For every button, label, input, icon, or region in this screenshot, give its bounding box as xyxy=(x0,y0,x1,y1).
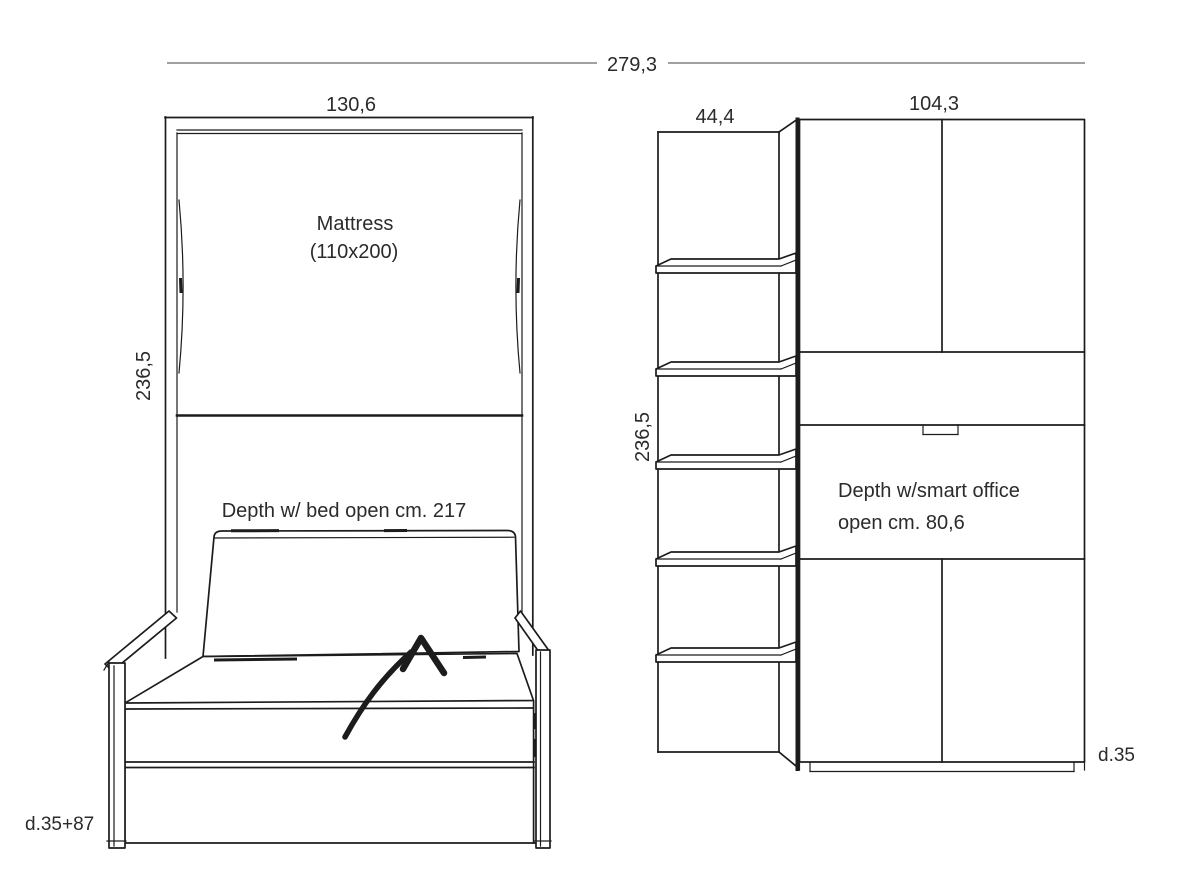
office-closed-depth-label: d.35 xyxy=(1098,745,1135,766)
mattress-label-line2: (110x200) xyxy=(310,241,399,263)
shelf-2 xyxy=(656,356,796,376)
sofa xyxy=(104,531,551,849)
shelf-5 xyxy=(656,642,796,662)
shelf-4 xyxy=(656,546,796,566)
shelf-width-label: 44,4 xyxy=(696,106,735,128)
bed-closed-depth-label: d.35+87 xyxy=(25,814,94,835)
shelf-3 xyxy=(656,449,796,469)
office-height-label: 236,5 xyxy=(632,412,654,462)
overall-width-label: 279,3 xyxy=(607,54,657,76)
cabinet-width-label: 104,3 xyxy=(909,93,959,115)
shelf-column xyxy=(656,120,798,770)
bed-open-depth-label: Depth w/ bed open cm. 217 xyxy=(222,500,467,522)
overall-width-dimension: 279,3 xyxy=(167,54,1085,76)
bed-height-label: 236,5 xyxy=(133,351,155,401)
sofa-backrest xyxy=(203,531,519,657)
technical-drawing-page: 279,3 130,6 236,5 Mattress (110x200) De xyxy=(0,0,1200,880)
office-open-depth-label-line1: Depth w/smart office xyxy=(838,480,1020,502)
sofa-seat xyxy=(125,654,534,704)
office-open-depth-label-line2: open cm. 80,6 xyxy=(838,512,965,534)
furniture-technical-drawing: 279,3 130,6 236,5 Mattress (110x200) De xyxy=(0,0,1200,880)
cabinet-plinth xyxy=(800,762,1085,772)
office-unit: 44,4 104,3 236,5 xyxy=(632,93,1135,772)
office-cabinet: Depth w/smart office open cm. 80,6 xyxy=(800,120,1085,772)
mattress-label-line1: Mattress xyxy=(317,213,394,235)
bed-width-label: 130,6 xyxy=(326,94,376,116)
shelf-1 xyxy=(656,253,796,273)
bed-unit: 130,6 236,5 Mattress (110x200) Depth w/ … xyxy=(25,94,551,848)
